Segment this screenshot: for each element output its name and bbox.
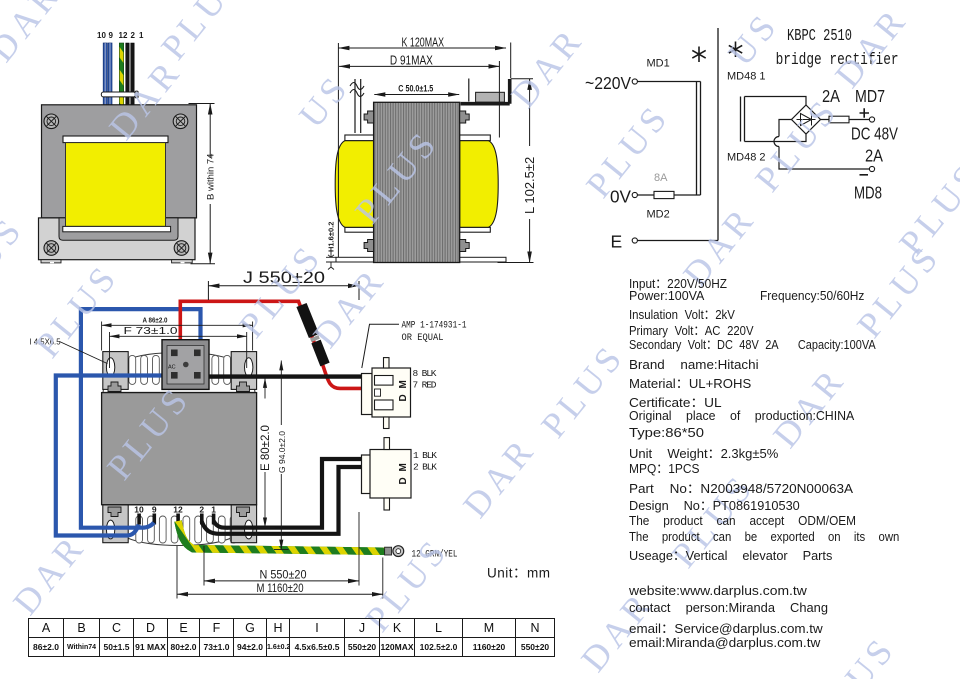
svg-text:US: US xyxy=(291,66,357,135)
svg-text:2A: 2A xyxy=(865,146,883,166)
svg-text:1: 1 xyxy=(211,505,216,515)
svg-text:9: 9 xyxy=(109,31,114,40)
svg-text:M 1160±20: M 1160±20 xyxy=(257,583,304,595)
svg-text:2: 2 xyxy=(199,505,204,515)
svg-text:B within 74: B within 74 xyxy=(206,154,217,200)
svg-text:MD2: MD2 xyxy=(647,209,670,221)
svg-text:Unit：mm: Unit：mm xyxy=(487,566,551,581)
svg-text:PLUS: PLUS xyxy=(747,90,846,199)
svg-text:AMP 1-174931-1: AMP 1-174931-1 xyxy=(402,320,467,332)
svg-text:~220V: ~220V xyxy=(585,73,631,93)
svg-text:PLUS: PLUS xyxy=(891,154,960,263)
svg-text:PLUS: PLUS xyxy=(153,0,252,67)
svg-text:MD1: MD1 xyxy=(647,58,670,70)
svg-text:G 94.0±2.0: G 94.0±2.0 xyxy=(277,431,287,473)
svg-text:1: 1 xyxy=(139,31,144,40)
svg-text:E 80±2.0: E 80±2.0 xyxy=(260,425,272,471)
svg-text:DAR: DAR xyxy=(455,429,543,525)
svg-text:7 RED: 7 RED xyxy=(413,380,437,391)
svg-text:2: 2 xyxy=(131,31,136,40)
svg-text:A 86±2.0: A 86±2.0 xyxy=(143,316,168,325)
svg-text:H1.6±0.2: H1.6±0.2 xyxy=(327,222,336,252)
svg-text:MD48 1: MD48 1 xyxy=(727,71,766,83)
svg-text:US: US xyxy=(837,628,903,679)
svg-text:US: US xyxy=(0,208,31,277)
svg-text:D M: D M xyxy=(398,379,409,402)
svg-text:8A: 8A xyxy=(654,172,668,184)
svg-text:DAR: DAR xyxy=(0,0,69,69)
svg-text:PLUS: PLUS xyxy=(533,336,632,445)
svg-text:2 BLK: 2 BLK xyxy=(413,462,437,473)
svg-text:MD8: MD8 xyxy=(854,183,882,203)
svg-text:KBPC 2510: KBPC 2510 xyxy=(787,27,852,46)
svg-text:DAR: DAR xyxy=(5,526,93,622)
svg-text:12: 12 xyxy=(119,31,128,40)
svg-text:DAR: DAR xyxy=(827,0,915,95)
svg-text:8 BLK: 8 BLK xyxy=(413,368,437,379)
svg-text:12: 12 xyxy=(173,505,183,515)
svg-text:1 BLK: 1 BLK xyxy=(413,450,437,461)
svg-text:F 73±1.0: F 73±1.0 xyxy=(124,325,178,337)
svg-text:L 102.5±2: L 102.5±2 xyxy=(522,157,537,214)
svg-text:D M: D M xyxy=(398,462,409,485)
svg-text:C 50.0±1.5: C 50.0±1.5 xyxy=(398,84,433,94)
svg-text:D 91MAX: D 91MAX xyxy=(390,53,433,68)
svg-text:DC 48V: DC 48V xyxy=(851,124,898,144)
svg-text:K 120MAX: K 120MAX xyxy=(402,35,445,50)
svg-text:9: 9 xyxy=(152,505,157,515)
svg-text:OR EQUAL: OR EQUAL xyxy=(402,332,444,344)
svg-text:N 550±20: N 550±20 xyxy=(260,569,307,581)
svg-text:10: 10 xyxy=(134,505,144,515)
svg-text:E: E xyxy=(611,232,623,252)
svg-text:AC: AC xyxy=(168,365,176,371)
svg-text:DAR: DAR xyxy=(503,19,591,115)
svg-text:10: 10 xyxy=(97,31,106,40)
